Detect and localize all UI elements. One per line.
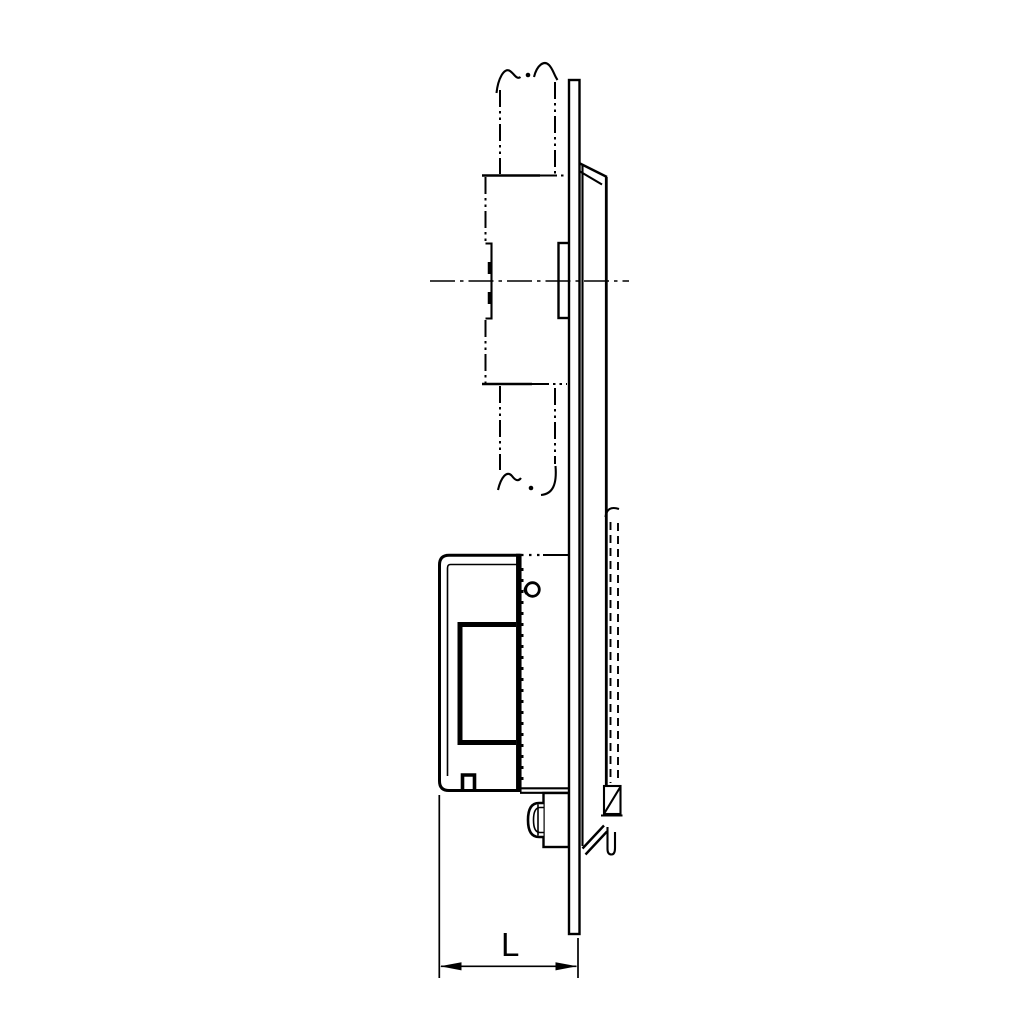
break-lines xyxy=(497,63,558,495)
screw-head xyxy=(525,583,540,597)
dimension-arrow-right xyxy=(556,962,578,970)
dimension-arrow-left xyxy=(440,962,462,970)
strike-lip-bracket xyxy=(583,786,623,855)
technical-drawing-canvas: L xyxy=(0,0,1024,1024)
frame-profile-edge xyxy=(580,164,607,847)
cable-bushing xyxy=(528,803,544,837)
dimension-label: L xyxy=(501,926,519,963)
connector-box xyxy=(544,793,570,847)
door-frame-phantom-outline xyxy=(482,82,567,470)
strike-housing xyxy=(440,554,569,793)
anchor-plate xyxy=(569,80,580,934)
technical-drawing: L xyxy=(0,0,1024,1024)
